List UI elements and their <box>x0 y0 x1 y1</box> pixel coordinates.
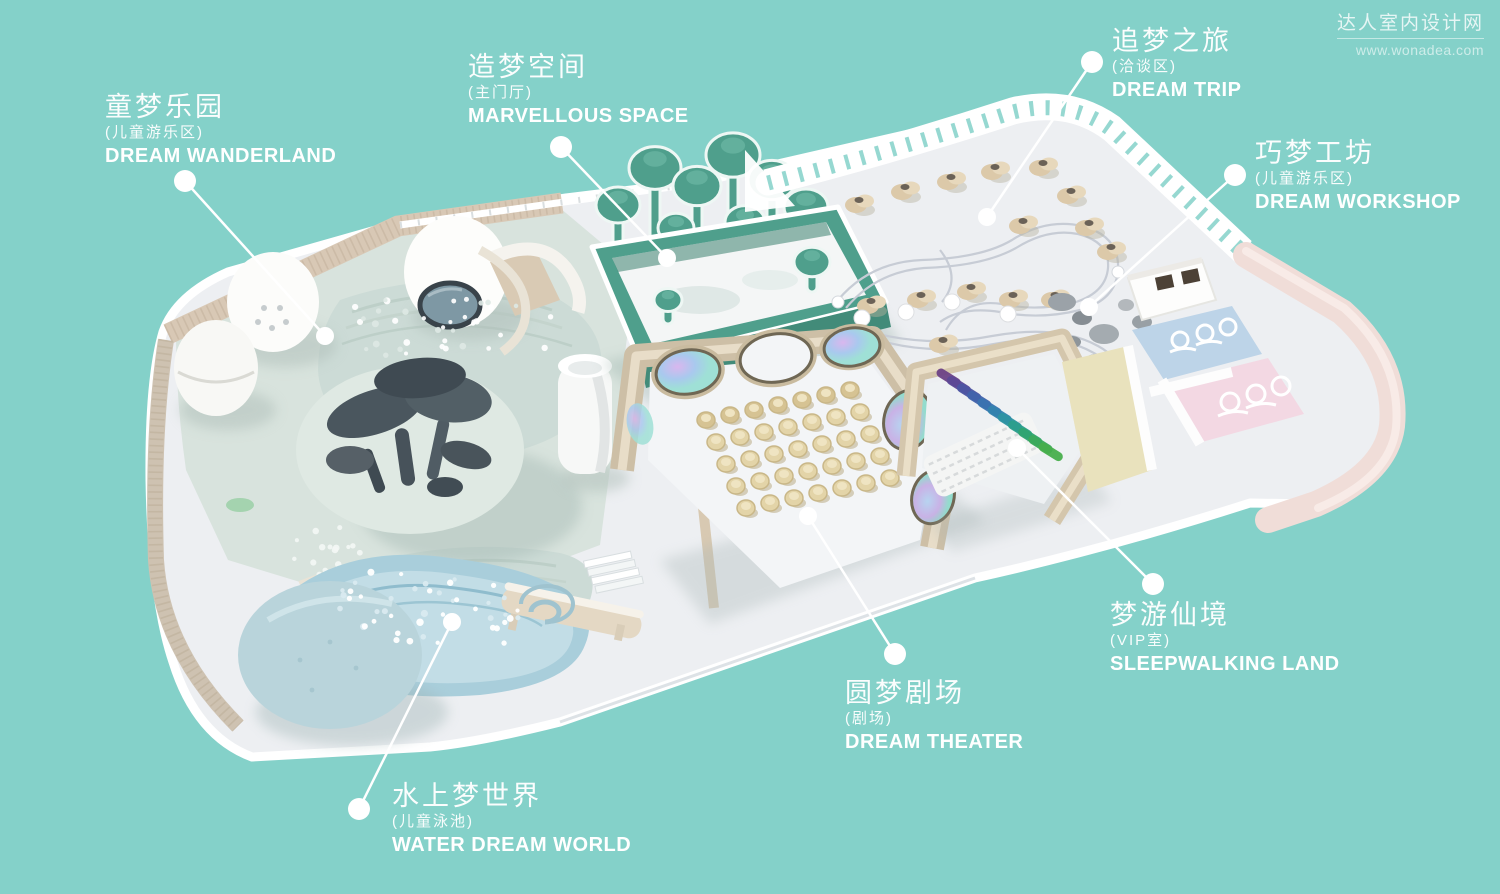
floorplan-illustration <box>0 0 1500 894</box>
watermark: 达人室内设计网 www.wonadea.com <box>1337 8 1484 58</box>
watermark-site-name: 达人室内设计网 <box>1337 8 1484 39</box>
watermark-site-url: www.wonadea.com <box>1337 42 1484 58</box>
render-canvas: 童梦乐园 (儿童游乐区) DREAM WANDERLAND 造梦空间 (主门厅)… <box>0 0 1500 894</box>
